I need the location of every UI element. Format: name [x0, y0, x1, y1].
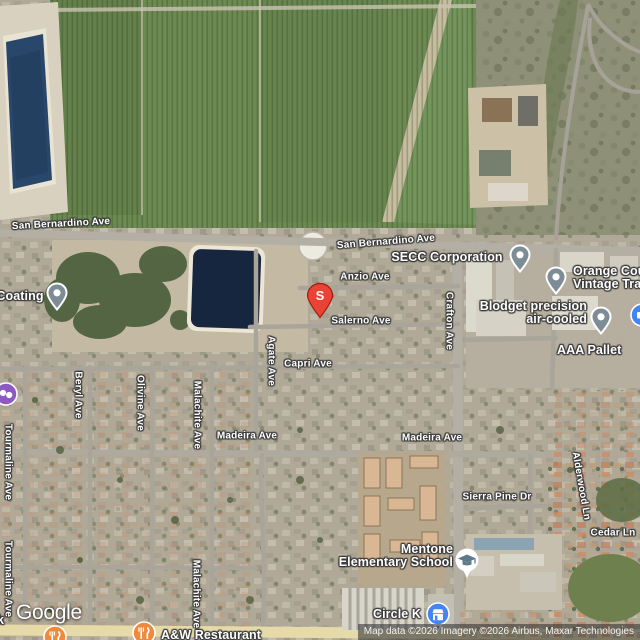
- poi-label-coating[interactable]: Coating: [0, 289, 44, 303]
- street-label-agate-ave: Agate Ave: [266, 336, 277, 386]
- street-label-salerno-ave: Salerno Ave: [331, 316, 390, 327]
- marker-letter: S: [316, 288, 325, 303]
- map-pin-icon: [589, 306, 613, 336]
- poi-pin-coating[interactable]: [45, 282, 69, 317]
- poi-pin-orange-cou-vintage-tra[interactable]: [544, 266, 568, 301]
- poi-icon-attraction-west[interactable]: [0, 382, 19, 419]
- street-label-tourmaline-ave-south: Tourmaline Ave: [3, 541, 14, 617]
- red-marker-icon: S: [305, 282, 335, 320]
- poi-label-orange-cou-vintage-tra[interactable]: Orange Cou Vintage Tra: [573, 265, 640, 291]
- poi-label-aaa-pallet[interactable]: AAA Pallet: [557, 343, 621, 357]
- street-label-olivine-ave: Olivine Ave: [135, 375, 146, 431]
- google-logo[interactable]: Google: [16, 601, 82, 625]
- attraction-icon: [0, 382, 19, 414]
- terrain-fields: [50, 0, 478, 228]
- street-label-crafton-ave: Crafton Ave: [444, 292, 455, 350]
- street-label-tourmaline-ave-north: Tourmaline Ave: [3, 424, 14, 500]
- restaurant-icon: [131, 621, 157, 640]
- street-label-malachite-ave-south: Malachite Ave: [191, 560, 202, 629]
- map-pin-icon: [45, 282, 69, 312]
- terrain-reservoir-northwest: [0, 2, 68, 220]
- poi-label-circle-k[interactable]: Circle K: [373, 607, 421, 621]
- street-label-cedar-ln: Cedar Ln: [591, 528, 636, 539]
- google-maps-satellite-view[interactable]: San Bernardino Ave San Bernardino Ave An…: [0, 0, 640, 640]
- map-pin-icon: [544, 266, 568, 296]
- poi-label-line: air-cooled: [473, 313, 587, 326]
- poi-label-line: Vintage Tra: [573, 278, 640, 291]
- poi-label-aw-restaurant[interactable]: A&W Restaurant: [161, 628, 261, 640]
- place-marker-s[interactable]: S: [305, 282, 335, 325]
- terrain-basin-area: [44, 232, 327, 352]
- poi-icon-mentone-elementary-school[interactable]: [453, 548, 481, 587]
- blue-poi-icon: [629, 303, 640, 335]
- street-label-capri-ave: Capri Ave: [284, 359, 332, 370]
- map-attribution: Map data ©2026 Imagery ©2026 Airbus, Max…: [358, 624, 640, 640]
- poi-pin-blodget-precision[interactable]: [589, 306, 613, 341]
- poi-label-mentone-elementary-school[interactable]: Mentone Elementary School: [303, 543, 453, 569]
- poi-label-truncated-west[interactable]: k: [0, 613, 4, 627]
- map-pin-icon: [508, 244, 532, 274]
- poi-pin-secc-corporation[interactable]: [508, 244, 532, 279]
- poi-icon-restaurant-southwest[interactable]: [42, 625, 68, 640]
- street-label-anzio-ave: Anzio Ave: [340, 272, 389, 283]
- street-label-malachite-ave-north: Malachite Ave: [192, 381, 203, 450]
- poi-label-secc-corporation[interactable]: SECC Corporation: [391, 250, 502, 264]
- school-icon: [453, 548, 481, 582]
- poi-label-blodget-precision-air-cooled[interactable]: Blodget precision air-cooled: [473, 300, 587, 326]
- poi-icon-aw-restaurant[interactable]: [131, 621, 157, 640]
- restaurant-icon: [42, 625, 68, 640]
- terrain-scrubland: [468, 0, 640, 240]
- street-label-beryl-ave: Beryl Ave: [73, 371, 84, 418]
- poi-icon-east-edge[interactable]: [629, 303, 640, 340]
- poi-label-line: Elementary School: [303, 556, 453, 569]
- street-label-madeira-ave-east: Madeira Ave: [402, 433, 462, 444]
- street-label-sierra-pine-dr: Sierra Pine Dr: [463, 492, 532, 503]
- street-label-madeira-ave-west: Madeira Ave: [217, 431, 277, 442]
